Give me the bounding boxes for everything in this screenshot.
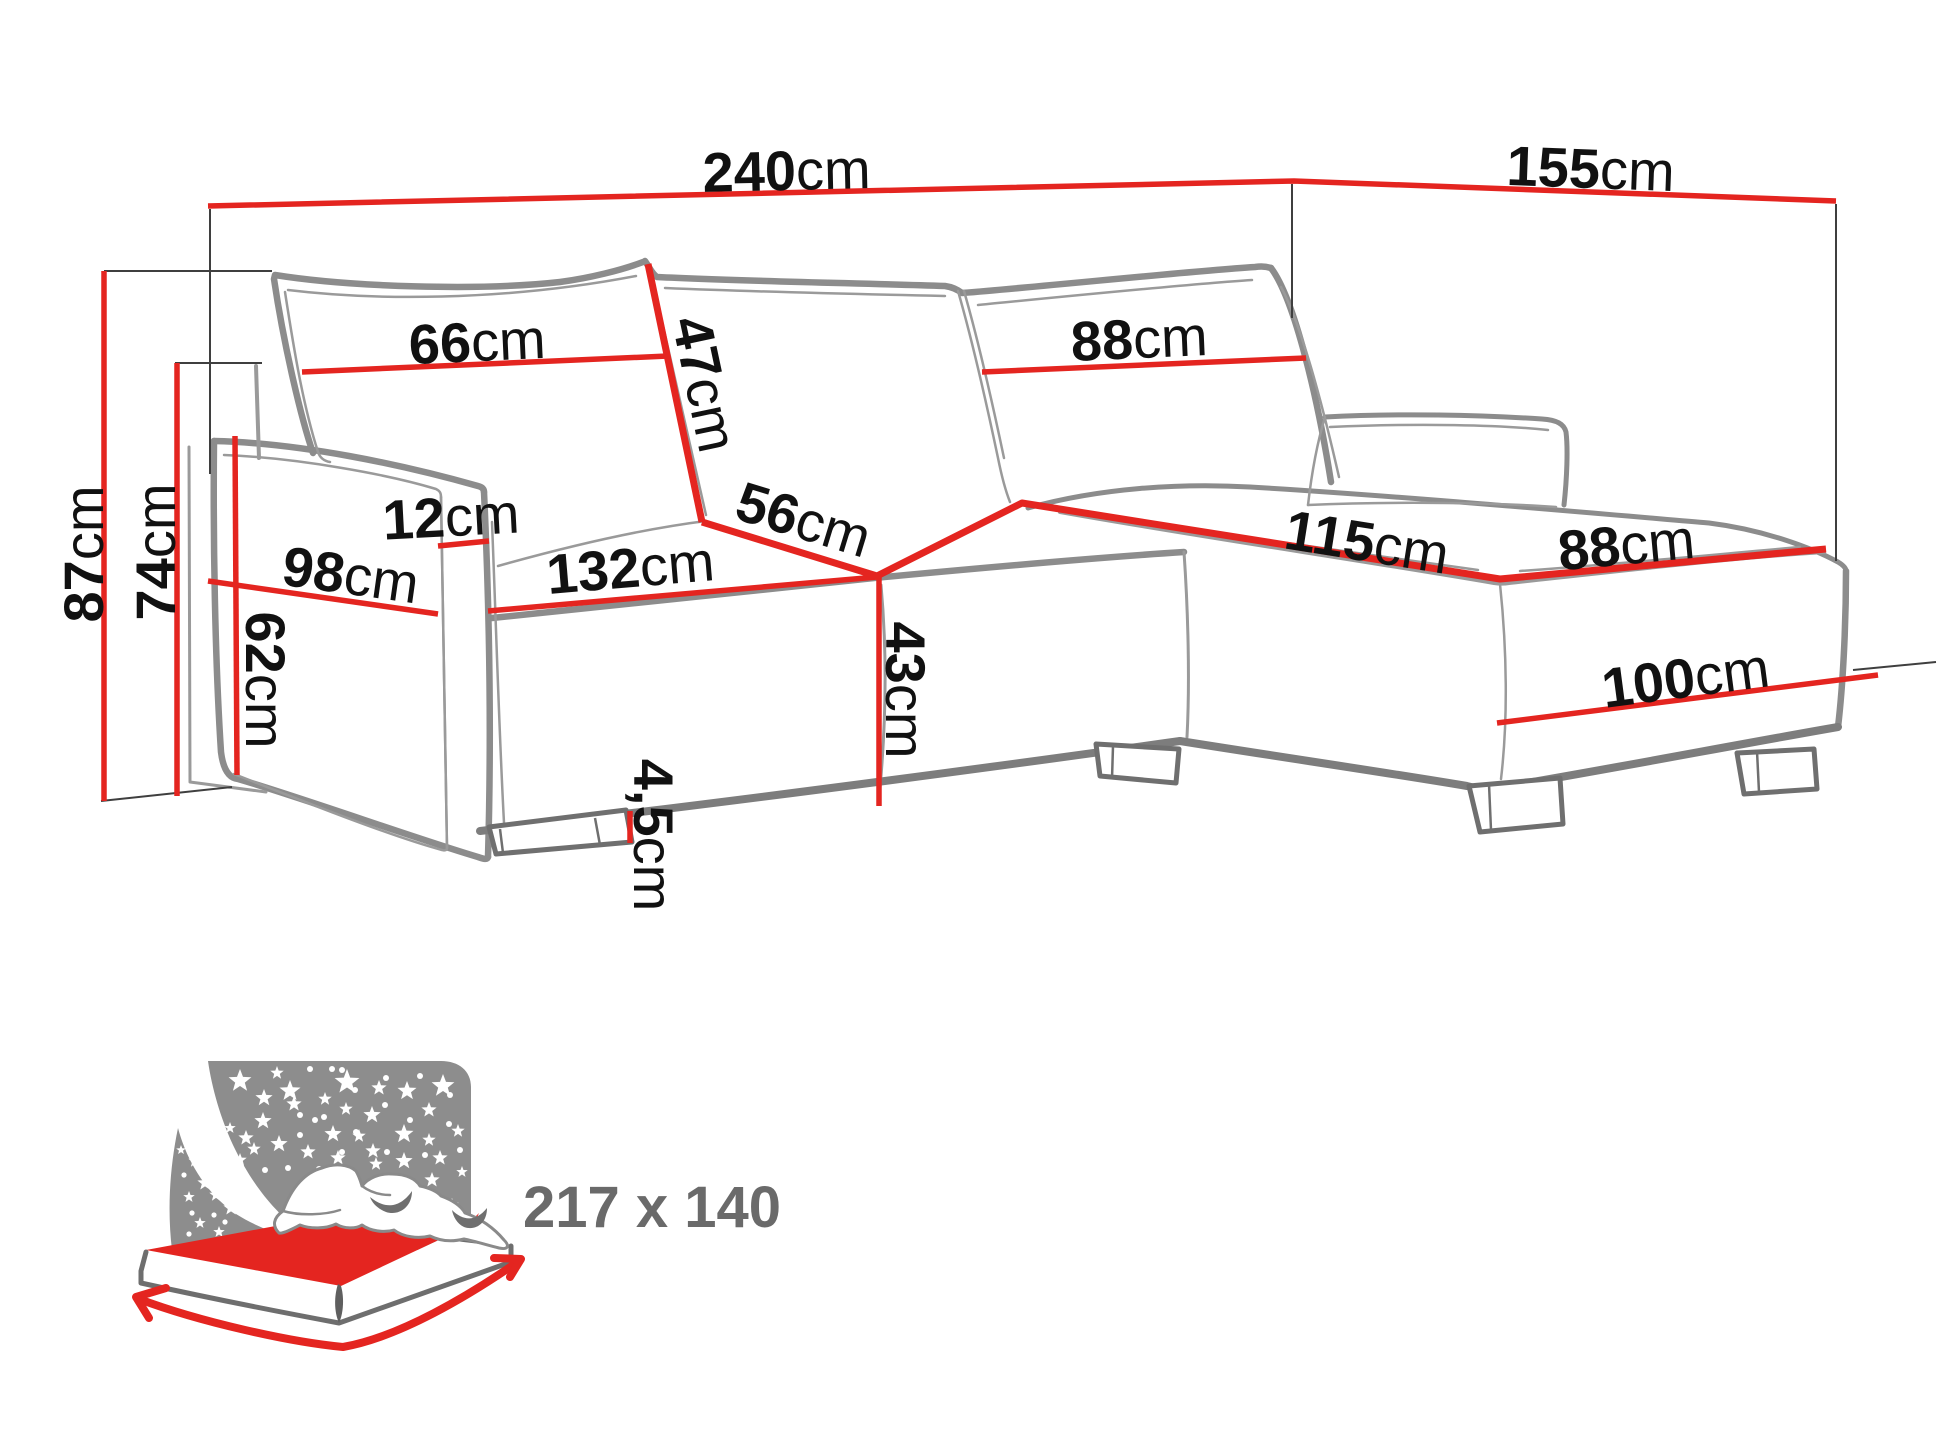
svg-text:66cm: 66cm xyxy=(407,307,547,376)
svg-text:217 x 140: 217 x 140 xyxy=(523,1175,781,1240)
svg-text:88cm: 88cm xyxy=(1069,304,1209,373)
svg-text:47cm: 47cm xyxy=(660,310,750,457)
svg-text:88cm: 88cm xyxy=(1555,507,1697,582)
svg-text:87cm: 87cm xyxy=(52,486,115,623)
svg-text:100cm: 100cm xyxy=(1598,635,1773,719)
svg-text:240cm: 240cm xyxy=(702,137,871,204)
svg-text:155cm: 155cm xyxy=(1506,134,1676,203)
svg-text:62cm: 62cm xyxy=(234,612,297,749)
svg-text:43cm: 43cm xyxy=(874,622,937,759)
svg-text:115cm: 115cm xyxy=(1281,498,1454,586)
svg-text:74cm: 74cm xyxy=(124,484,187,621)
svg-text:12cm: 12cm xyxy=(381,481,521,551)
svg-text:4,5cm: 4,5cm xyxy=(622,759,685,912)
